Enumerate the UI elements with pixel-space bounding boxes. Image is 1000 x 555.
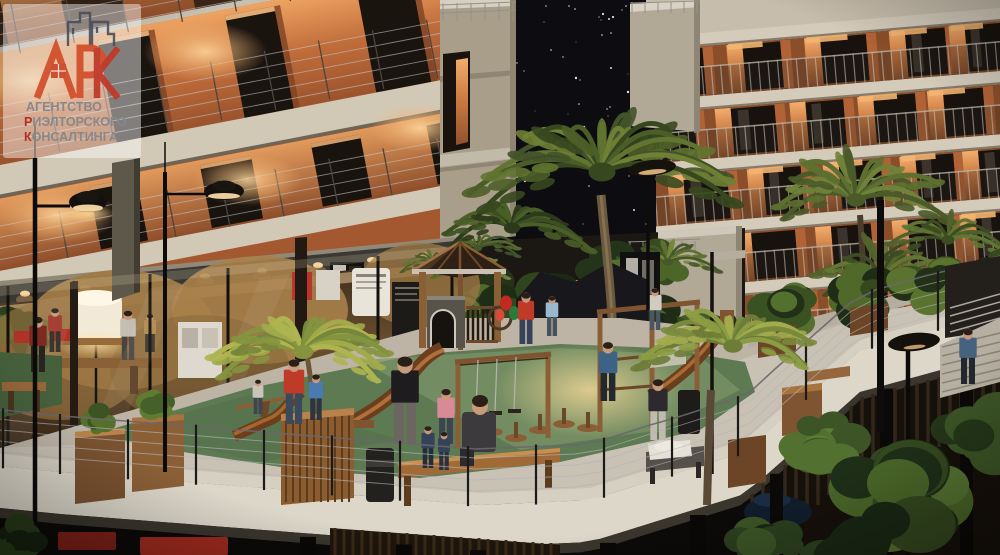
svg-text:АГЕНТСТВО: АГЕНТСТВО bbox=[26, 100, 102, 114]
svg-text:КОНСАЛТИНГА: КОНСАЛТИНГА bbox=[24, 130, 118, 144]
svg-text:РИЭЛТОРСКОГО: РИЭЛТОРСКОГО bbox=[24, 115, 127, 129]
